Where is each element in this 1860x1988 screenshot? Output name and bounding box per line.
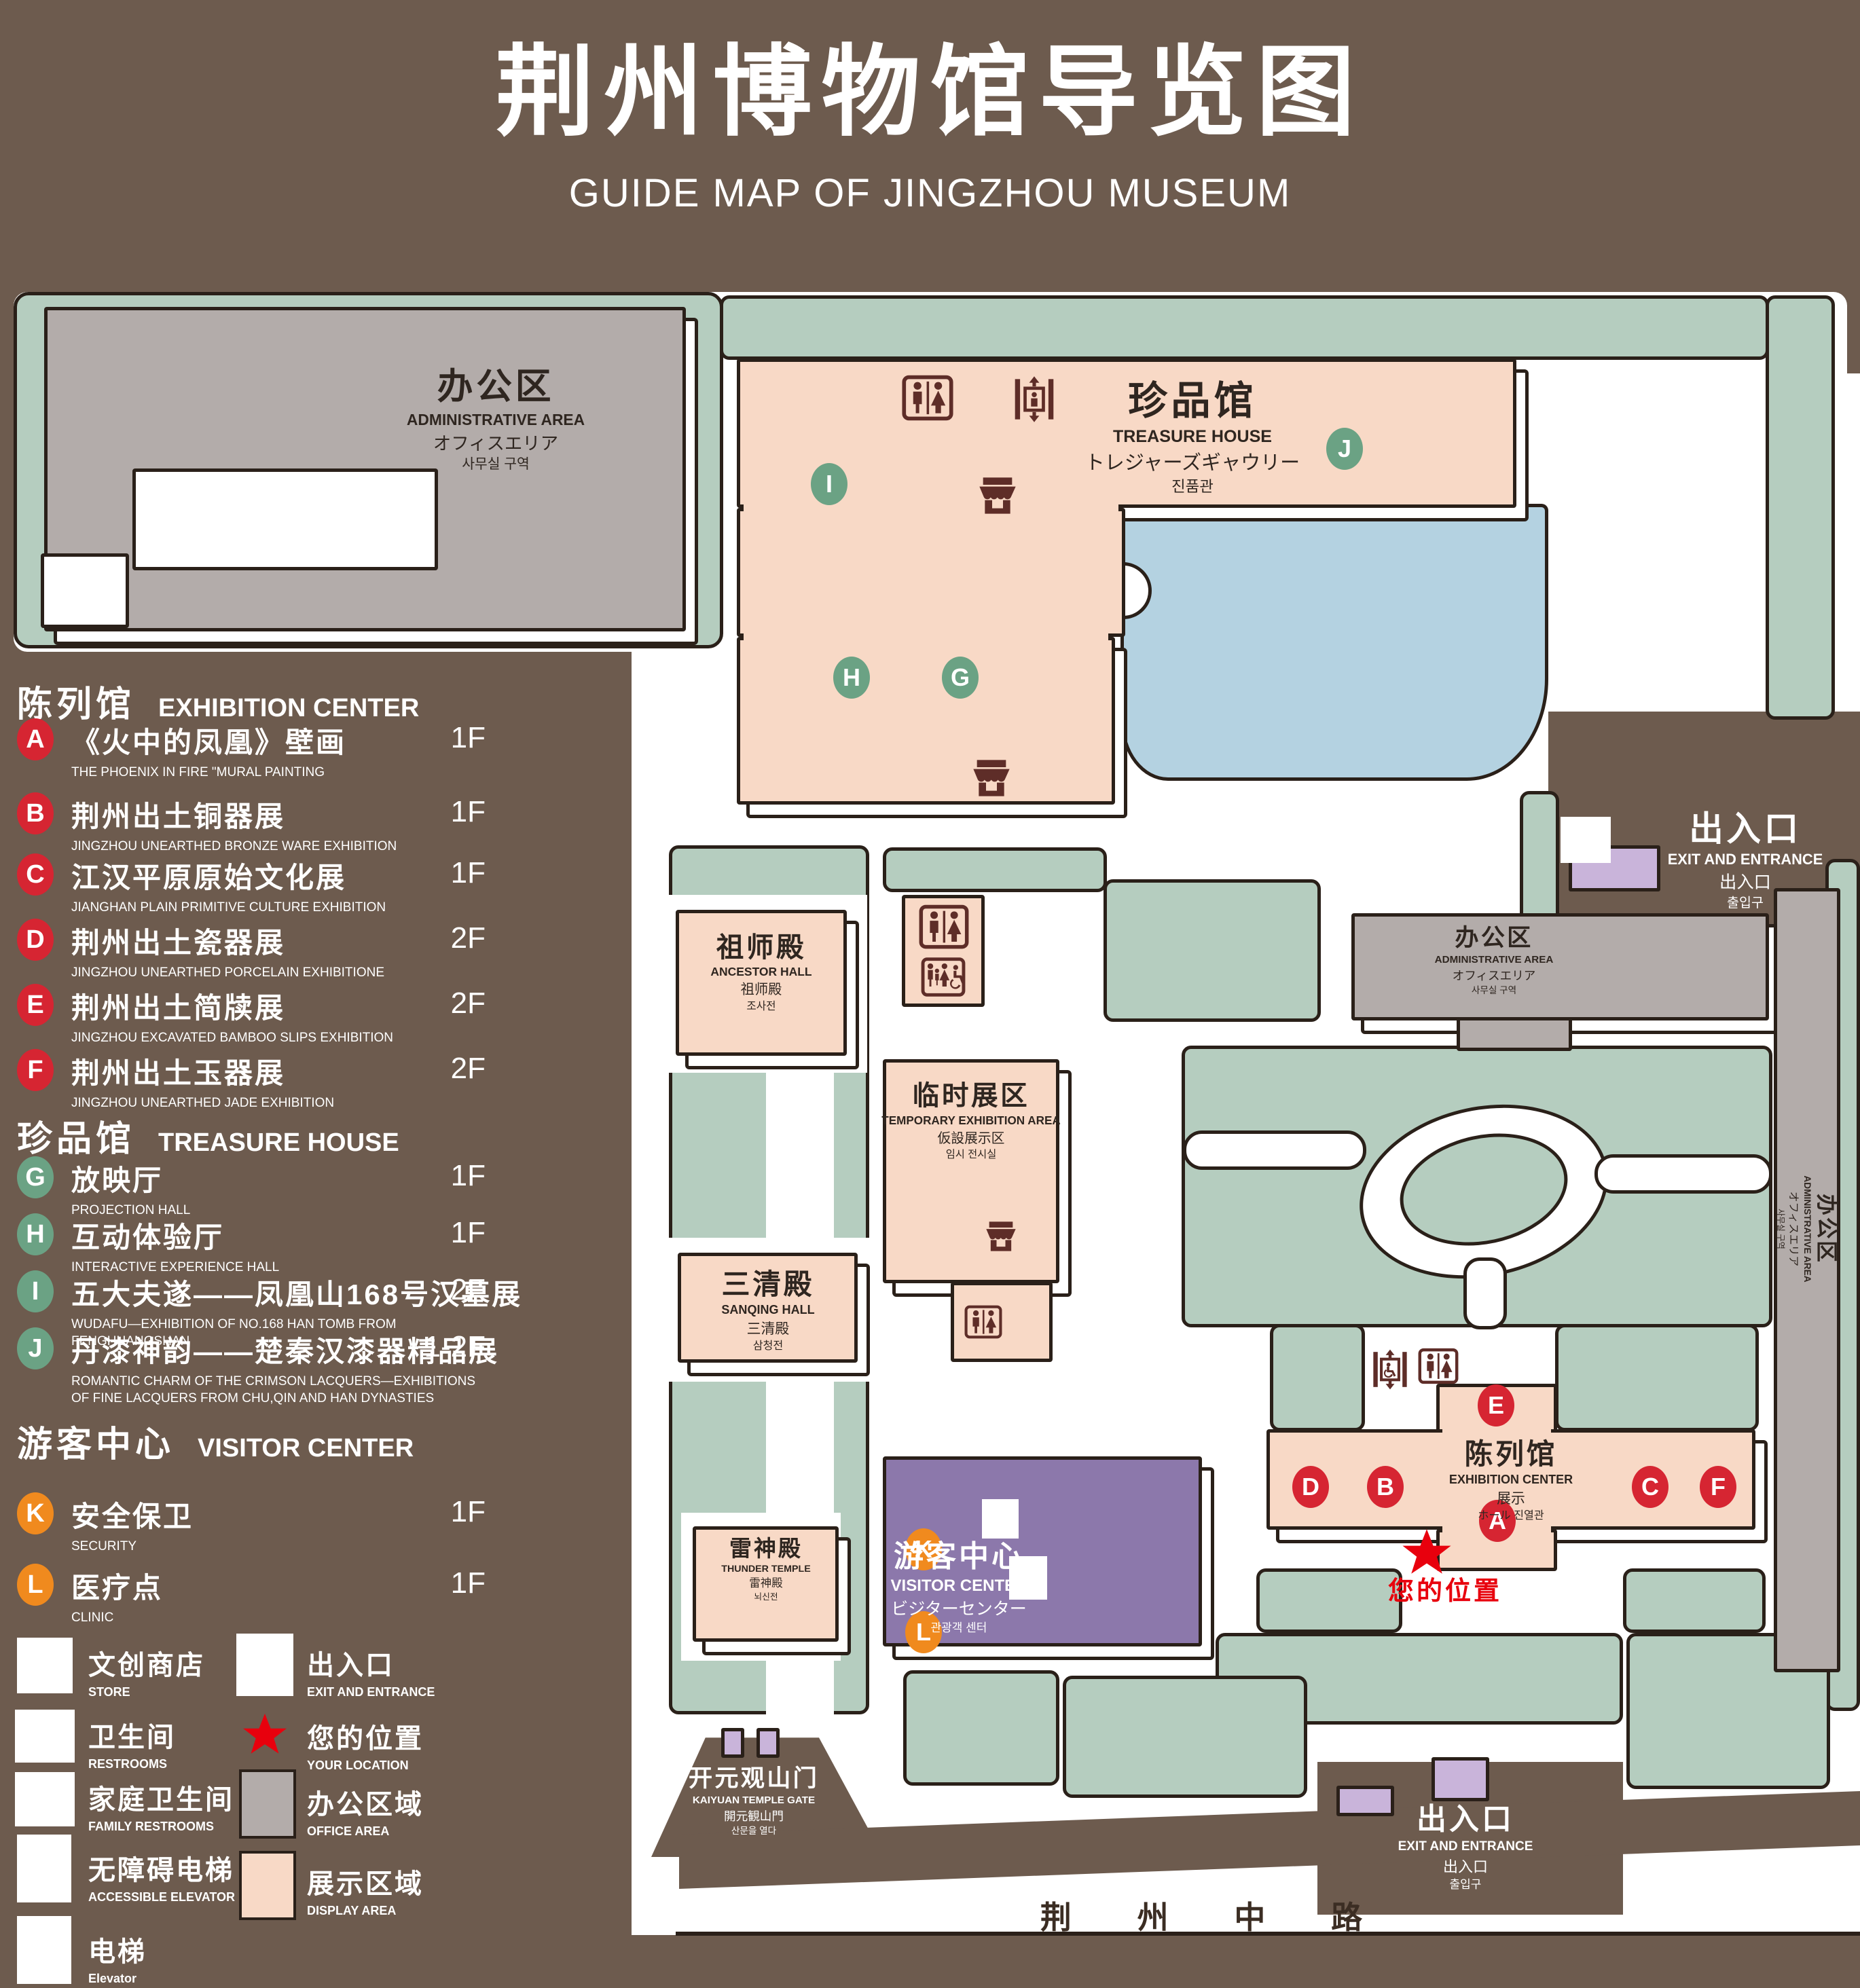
admin-building-right-stem	[1457, 1017, 1572, 1051]
temporary-exhibition-label: 临时展区TEMPORARY EXHIBITION AREA 仮設展示区임시 전시…	[881, 1081, 1060, 1160]
road-name: 荆 州 中 路	[1040, 1893, 1391, 1938]
legend-badge-j: J	[17, 1327, 54, 1369]
legend-badge-a: A	[17, 718, 54, 760]
restroom-icon	[15, 1710, 75, 1763]
legend-badge-l: L	[17, 1564, 54, 1606]
map-badge-f: F	[1700, 1466, 1736, 1508]
accessible-elevator-icon	[17, 1835, 71, 1902]
legend-header-treasure: 珍品馆 TREASURE HOUSE	[17, 1110, 399, 1161]
map-badge-c: C	[1632, 1466, 1668, 1508]
thunder-temple-label: 雷神殿THUNDER TEMPLE 雷神殿뇌신전	[721, 1536, 810, 1602]
floor-label: 1F	[451, 1495, 486, 1529]
floor-label: 1F	[451, 1159, 486, 1193]
admin-topleft-label: 办公区ADMINISTRATIVE AREA オフィスエリア사무실 구역	[407, 367, 585, 473]
legend-store-label: 文创商店STORE	[88, 1643, 205, 1699]
legend-item-f: F 荆州出土玉器展JINGZHOU UNEARTHED JADE EXHIBIT…	[17, 1050, 486, 1112]
legend-badge-i: I	[17, 1270, 54, 1312]
map-badge-g: G	[942, 657, 979, 699]
restroom-icon	[900, 375, 955, 421]
legend-header-visitor: 游客中心 VISITOR CENTER	[17, 1416, 414, 1467]
floor-label: 1F	[451, 1216, 486, 1250]
pond-path-west	[1183, 1130, 1366, 1170]
lawn-courtyard-right	[1555, 1324, 1759, 1431]
floor-label: 1F	[451, 1566, 486, 1600]
treasure-house-mid	[737, 508, 1125, 637]
legend-exit-label: 出入口EXIT AND ENTRANCE	[307, 1643, 435, 1699]
treasure-house-label: 珍品馆TREASURE HOUSE トレジャーズギャウリー진품관	[1085, 379, 1300, 496]
gate-label: 开元观山门KAIYUAN TEMPLE GATE 開元観山門산문을 열다	[689, 1765, 819, 1836]
legend-display-label: 展示区域DISPLAY AREA	[307, 1862, 424, 1918]
legend-badge-e: E	[17, 984, 54, 1026]
floor-label: 2F	[451, 1052, 486, 1086]
floor-label: 2F	[451, 1273, 486, 1307]
lawn-mid	[1104, 879, 1321, 1022]
legend-item-g: G 放映厅PROJECTION HALL 1F	[17, 1158, 486, 1219]
elevator-icon	[1013, 370, 1055, 428]
legend-item-e: E 荆州出土简牍展JINGZHOU EXCAVATED BAMBOO SLIPS…	[17, 985, 486, 1047]
visitor-center-label: 游客中心VISITOR CENTER ビジターセンター관광객 센터	[891, 1540, 1027, 1634]
lawn-right-upper	[1766, 295, 1835, 720]
legend-item-c: C 江汉平原原始文化展JIANGHAN PLAIN PRIMITIVE CULT…	[17, 855, 486, 917]
legend-badge-d: D	[17, 919, 54, 961]
lawn-below-visitor	[903, 1670, 1059, 1786]
store-icon	[976, 472, 1019, 519]
location-star-icon	[241, 1712, 289, 1759]
map-badge-e: E	[1478, 1384, 1514, 1426]
legend-item-b: B 荆州出土铜器展JINGZHOU UNEARTHED BRONZE WARE …	[17, 794, 486, 855]
lawn-gate-right	[1063, 1676, 1307, 1798]
treasure-house-lower	[737, 637, 1115, 805]
store-icon	[17, 1638, 73, 1693]
exit-top-right-label: 出入口EXIT AND ENTRANCE 出入口출입구	[1668, 809, 1823, 911]
map-badge-d: D	[1292, 1466, 1329, 1508]
treasure-joint-2	[744, 631, 1108, 642]
legend-restrooms-label: 卫生间RESTROOMS	[88, 1715, 176, 1771]
sanqing-hall-label: 三清殿SANQING HALL 三清殿삼청전	[721, 1268, 814, 1352]
legend-badge-g: G	[17, 1156, 54, 1198]
lawn-top-band	[720, 295, 1769, 360]
legend-badge-b: B	[17, 792, 54, 834]
lawn-exh-bottom-right	[1623, 1568, 1766, 1633]
accessible-elevator-icon	[1372, 1347, 1408, 1392]
map-badge-i: I	[811, 463, 847, 505]
road-bed	[676, 1932, 1860, 1988]
floor-label: 1F	[451, 795, 486, 829]
legend-header-exhibition: 陈列馆 EXHIBITION CENTER	[17, 676, 419, 726]
exhibition-center-label: 陈列馆EXHIBITION CENTER 展示ホール 진열관	[1449, 1438, 1573, 1522]
purple-building-exit-right	[1432, 1757, 1489, 1801]
family-restroom-icon	[921, 953, 966, 1001]
title-english: GUIDE MAP OF JINGZHOU MUSEUM	[0, 170, 1860, 216]
admin-topleft-courtyard	[132, 468, 438, 570]
legend-item-j: J 丹漆神韵——楚秦汉漆器精品展ROMANTIC CHARM OF THE CR…	[17, 1329, 486, 1407]
floor-label: 1F	[451, 721, 486, 755]
legend-item-k: K 安全保卫SECURITY 1F	[17, 1494, 486, 1556]
exit-icon	[236, 1634, 293, 1696]
title-chinese: 荆州博物馆导览图	[0, 12, 1860, 155]
admin-right-label: 办公区ADMINISTRATIVE AREA オフィスエリア사무실 구역	[1435, 925, 1554, 995]
store-icon	[970, 754, 1013, 803]
legend-elevator-label: 电梯Elevator	[88, 1930, 147, 1986]
restroom-icon	[1418, 1344, 1459, 1388]
guide-map-poster: 荆州博物馆导览图 GUIDE MAP OF JINGZHOU MUSEUM	[0, 0, 1860, 1988]
legend-location-label: 您的位置YOUR LOCATION	[307, 1716, 424, 1773]
your-location-text: 您的位置	[1388, 1570, 1502, 1607]
legend-item-a: A 《火中的凤凰》壁画THE PHOENIX IN FIRE "MURAL PA…	[17, 720, 486, 781]
office-area-swatch	[239, 1769, 296, 1839]
gate-pillar-right	[756, 1728, 780, 1758]
legend-item-l: L 医疗点CLINIC 1F	[17, 1565, 486, 1627]
legend-office-label: 办公区域OFFICE AREA	[307, 1782, 424, 1839]
pond-path-south	[1463, 1257, 1507, 1329]
map-badge-j: J	[1326, 428, 1363, 470]
store-icon	[983, 1215, 1019, 1257]
lawn-courtyard-left	[1270, 1324, 1365, 1431]
floor-label: 1F	[451, 856, 486, 890]
treasure-joint-1	[744, 502, 1118, 513]
legend-item-h: H 互动体验厅INTERACTIVE EXPERIENCE HALL 1F	[17, 1215, 486, 1276]
exit-bottom-label: 出入口EXIT AND ENTRANCE 出入口출입구	[1398, 1803, 1533, 1891]
floor-label: 2F	[451, 921, 486, 955]
legend-item-d: D 荆州出土瓷器展JINGZHOU UNEARTHED PORCELAIN EX…	[17, 920, 486, 982]
ancestor-hall-label: 祖师殿ANCESTOR HALL 祖师殿조사전	[710, 932, 812, 1013]
admin-building-right	[1351, 913, 1769, 1020]
admin-side-label: 办公区ADMINISTRATIVE AREA オフィスエリア사무실 구역	[1775, 1175, 1839, 1282]
restroom-icon	[982, 1499, 1019, 1539]
pond-path-east	[1594, 1154, 1772, 1194]
legend-badge-k: K	[17, 1492, 54, 1534]
map-badge-h: H	[833, 657, 870, 699]
legend-family-label: 家庭卫生间FAMILY RESTROOMS	[88, 1778, 234, 1834]
restroom-icon	[918, 904, 970, 949]
display-area-swatch	[239, 1851, 296, 1920]
legend-accessible-elevator-label: 无障碍电梯ACCESSIBLE ELEVATOR	[88, 1848, 235, 1904]
floor-label: 1-2F	[424, 1330, 486, 1364]
purple-building-exit-left	[1336, 1786, 1394, 1816]
lawn-center-strip	[883, 847, 1107, 892]
lake	[1120, 504, 1548, 781]
lawn-exh-bottom-left	[1256, 1568, 1402, 1633]
elevator-icon	[17, 1916, 71, 1984]
admin-topleft-notch	[41, 553, 129, 628]
legend-badge-f: F	[17, 1049, 54, 1091]
family-restroom-icon	[15, 1772, 75, 1826]
legend-badge-h: H	[17, 1213, 54, 1255]
legend-badge-c: C	[17, 853, 54, 896]
poster-title: 荆州博物馆导览图 GUIDE MAP OF JINGZHOU MUSEUM	[0, 12, 1860, 216]
map-badge-b: B	[1367, 1466, 1404, 1508]
gate-pillar-left	[721, 1728, 744, 1758]
floor-label: 2F	[451, 987, 486, 1020]
exit-icon	[1561, 817, 1611, 863]
restroom-icon	[964, 1301, 1002, 1343]
